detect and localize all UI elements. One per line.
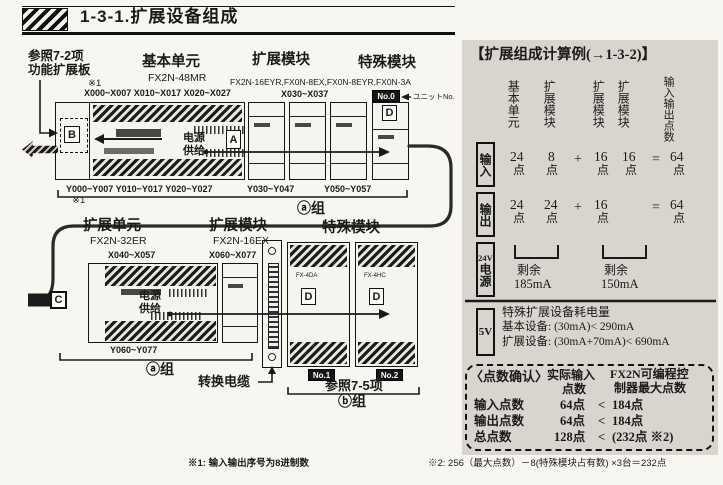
input-row-label: 输入 — [476, 142, 495, 187]
plus-sign: + — [574, 200, 582, 215]
unit-dian: 点 — [597, 212, 609, 225]
special-module-1-model: FX-4DA — [296, 273, 317, 280]
special-module-2-model: FX-4HC — [364, 273, 386, 280]
exp-module-row2-box — [222, 263, 258, 343]
unit-dian: 点 — [546, 212, 558, 225]
manual-page: 1-3-1.扩展设备组成 参照7-2项 功能扩展板 ※1 基本单元 FX2N-4… — [0, 0, 723, 485]
calc-example-panel: 【扩展组成计算例(→1-3-2)】 基本单元 扩展模块 扩展模块 扩展模块 输入… — [462, 40, 718, 455]
unit-dian: 点 — [546, 164, 558, 177]
y-note: ※1 — [72, 196, 85, 206]
plus-sign: + — [574, 152, 582, 167]
cable-leader — [258, 371, 272, 382]
base-unit-model: FX2N-48MR — [148, 73, 206, 85]
exp-module-1 — [248, 102, 285, 180]
remain-right-word: 剩余 — [604, 264, 628, 277]
equals-sign: = — [652, 152, 660, 167]
fn-board-ref: 参照7-2项 — [28, 50, 84, 64]
check-row-actual: 64点 — [560, 415, 585, 429]
hatch-icon — [22, 8, 68, 31]
x-label-exp-row2: X060~X077 — [209, 251, 256, 261]
unit-dian: 点 — [673, 212, 685, 225]
special-module-1-box — [287, 242, 350, 367]
nameplate — [104, 148, 154, 154]
p5-line3: 扩展设备: (30mA+70mA)< 690mA — [502, 336, 670, 349]
remain-right-value: 150mA — [601, 278, 639, 292]
tag-d-sp2: D — [369, 288, 384, 305]
tag-d-row1: D — [382, 105, 397, 121]
p24-label-cn: 电源 — [477, 263, 494, 287]
output-row-label: 输出 — [476, 192, 495, 237]
y-label-mod1: Y030~Y047 — [247, 185, 294, 195]
exp-module-title-row2: 扩展模块 — [209, 219, 267, 235]
check-row-name: 输入点数 — [474, 399, 524, 413]
col-header-exp1: 扩展模块 — [542, 80, 555, 142]
check-row-name: 输出点数 — [474, 415, 524, 429]
tag-c: C — [50, 291, 67, 309]
remain-left-value: 185mA — [514, 278, 552, 292]
special-module-title-row2: 特殊模块 — [322, 221, 380, 237]
tag-a: A — [226, 130, 241, 149]
check-col1-l2: 点数 — [562, 383, 586, 396]
lt-sign: < — [598, 415, 605, 429]
check-row-name: 总点数 — [474, 431, 512, 445]
p5-line1: 特殊扩展设备耗电量 — [502, 306, 610, 319]
arrowhead — [401, 94, 409, 101]
col-header-base: 基本单元 — [506, 80, 519, 142]
terminal-strip-bottom — [105, 321, 216, 341]
interface-connector-box — [262, 240, 282, 368]
y-labels-base: Y000~Y007 Y010~Y017 Y020~Y027 — [66, 185, 213, 195]
io-led-row — [206, 149, 244, 157]
check-row-actual: 128点 — [554, 431, 585, 445]
col-header-exp2: 扩展模块 — [591, 80, 604, 142]
unit-dian: 点 — [673, 164, 685, 177]
check-title: 〈点数确认〉 — [470, 370, 548, 384]
ext-unit-model: FX2N-32ER — [90, 236, 147, 248]
group-a-label-row1: ⓐ组 — [297, 201, 325, 216]
ref-7-5-label: 参照7-5项 — [325, 379, 383, 393]
y-label-mod2: Y050~Y057 — [324, 185, 371, 195]
check-col2-l1: FX2N可编程控 — [610, 368, 689, 381]
remain-left-word: 剩余 — [517, 264, 541, 277]
unit-dian: 点 — [513, 212, 525, 225]
power-label-row2-l2: 供给 — [139, 303, 161, 315]
check-row-max: 184点 — [612, 399, 643, 413]
module-models-line: FX2N-16EYR,FX0N-8EX,FX0N-8EYR,FX0N-3A — [230, 78, 411, 87]
col-header-exp3: 扩展模块 — [616, 80, 629, 142]
group-b-label: ⓑ组 — [338, 394, 366, 409]
footnote-1: ※1: 输入输出序号为8进制数 — [188, 459, 309, 469]
y-label-ext-unit: Y060~Y077 — [110, 346, 157, 356]
col-header-io: 输入输出点数 — [662, 76, 674, 156]
unit-no-note: ユニットNo. — [413, 93, 455, 101]
x-label-modules: X030~X037 — [281, 90, 328, 100]
terminal-strip-top — [105, 266, 216, 286]
unit-no-badge: No.0 — [372, 90, 400, 102]
check-col1-l1: 实际输入 — [547, 369, 595, 382]
panel-title: 【扩展组成计算例(→1-3-2)】 — [470, 48, 656, 64]
unit-dian: 点 — [513, 164, 525, 177]
x-labels-base: X000~X007 X010~X017 X020~X027 — [84, 89, 231, 99]
lt-sign: < — [598, 431, 605, 445]
check-col2-l2: 制器最大点数 — [614, 382, 686, 395]
equals-sign: = — [652, 200, 660, 215]
conversion-cable-label: 转换电缆 — [198, 375, 250, 389]
exp-module-2 — [289, 102, 326, 180]
p5-row-label: 5V — [476, 308, 495, 356]
exp-module-title-row1: 扩展模块 — [252, 53, 310, 69]
check-row-max: 184点 — [612, 415, 643, 429]
terminal-strip-top — [93, 105, 242, 122]
unit-dian: 点 — [597, 164, 609, 177]
p24-label-top: 24V — [478, 253, 493, 263]
exp-module-3 — [330, 102, 367, 180]
tag-d-sp1: D — [301, 288, 316, 305]
p5-line2: 基本设备: (30mA)< 290mA — [502, 321, 634, 334]
ext-unit-title: 扩展单元 — [83, 219, 141, 235]
power-label-row1-l2: 供给 — [183, 145, 205, 157]
page-title: 1-3-1.扩展设备组成 — [80, 8, 238, 27]
board-insert-arrow-icon — [22, 141, 58, 158]
check-row-actual: 64点 — [560, 399, 585, 413]
footnote-2: ※2: 256（最大点数）－8(特殊模块占有数) ×3台＝232点 — [428, 459, 666, 469]
terminal-strip-bottom — [93, 159, 242, 176]
check-row-max: (232点 ※2) — [612, 431, 673, 445]
tag-b: B — [64, 126, 80, 143]
power-label-row2-l1: 电源 — [139, 290, 161, 302]
base-unit-title: 基本单元 — [142, 55, 200, 71]
board-leader-line — [40, 80, 52, 133]
x-label-ext-unit: X040~X057 — [108, 251, 155, 261]
group-a-label-row2: ⓐ组 — [146, 362, 174, 377]
lt-sign: < — [598, 399, 605, 413]
unit-dian: 点 — [625, 164, 637, 177]
power-label-row1-l1: 电源 — [183, 132, 205, 144]
special-module-title-row1: 特殊模块 — [358, 56, 416, 72]
p24-row-label: 24V 电源 — [476, 242, 495, 297]
exp-module-model-row2: FX2N-16EX — [213, 236, 269, 248]
divider — [89, 103, 90, 179]
special-module-2-box — [355, 242, 418, 367]
fn-board-name: 功能扩展板 — [28, 64, 91, 78]
nameplate — [116, 129, 161, 137]
